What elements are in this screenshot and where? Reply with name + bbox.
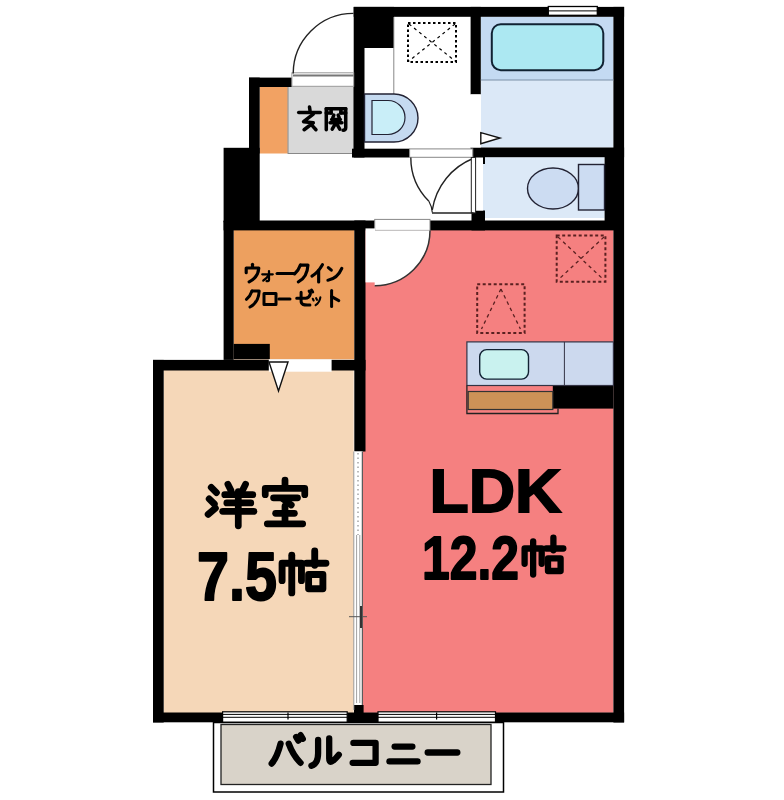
svg-text:LDK: LDK [430,456,562,525]
svg-text:12.2: 12.2 [422,523,519,592]
svg-text:7.5: 7.5 [197,538,277,614]
